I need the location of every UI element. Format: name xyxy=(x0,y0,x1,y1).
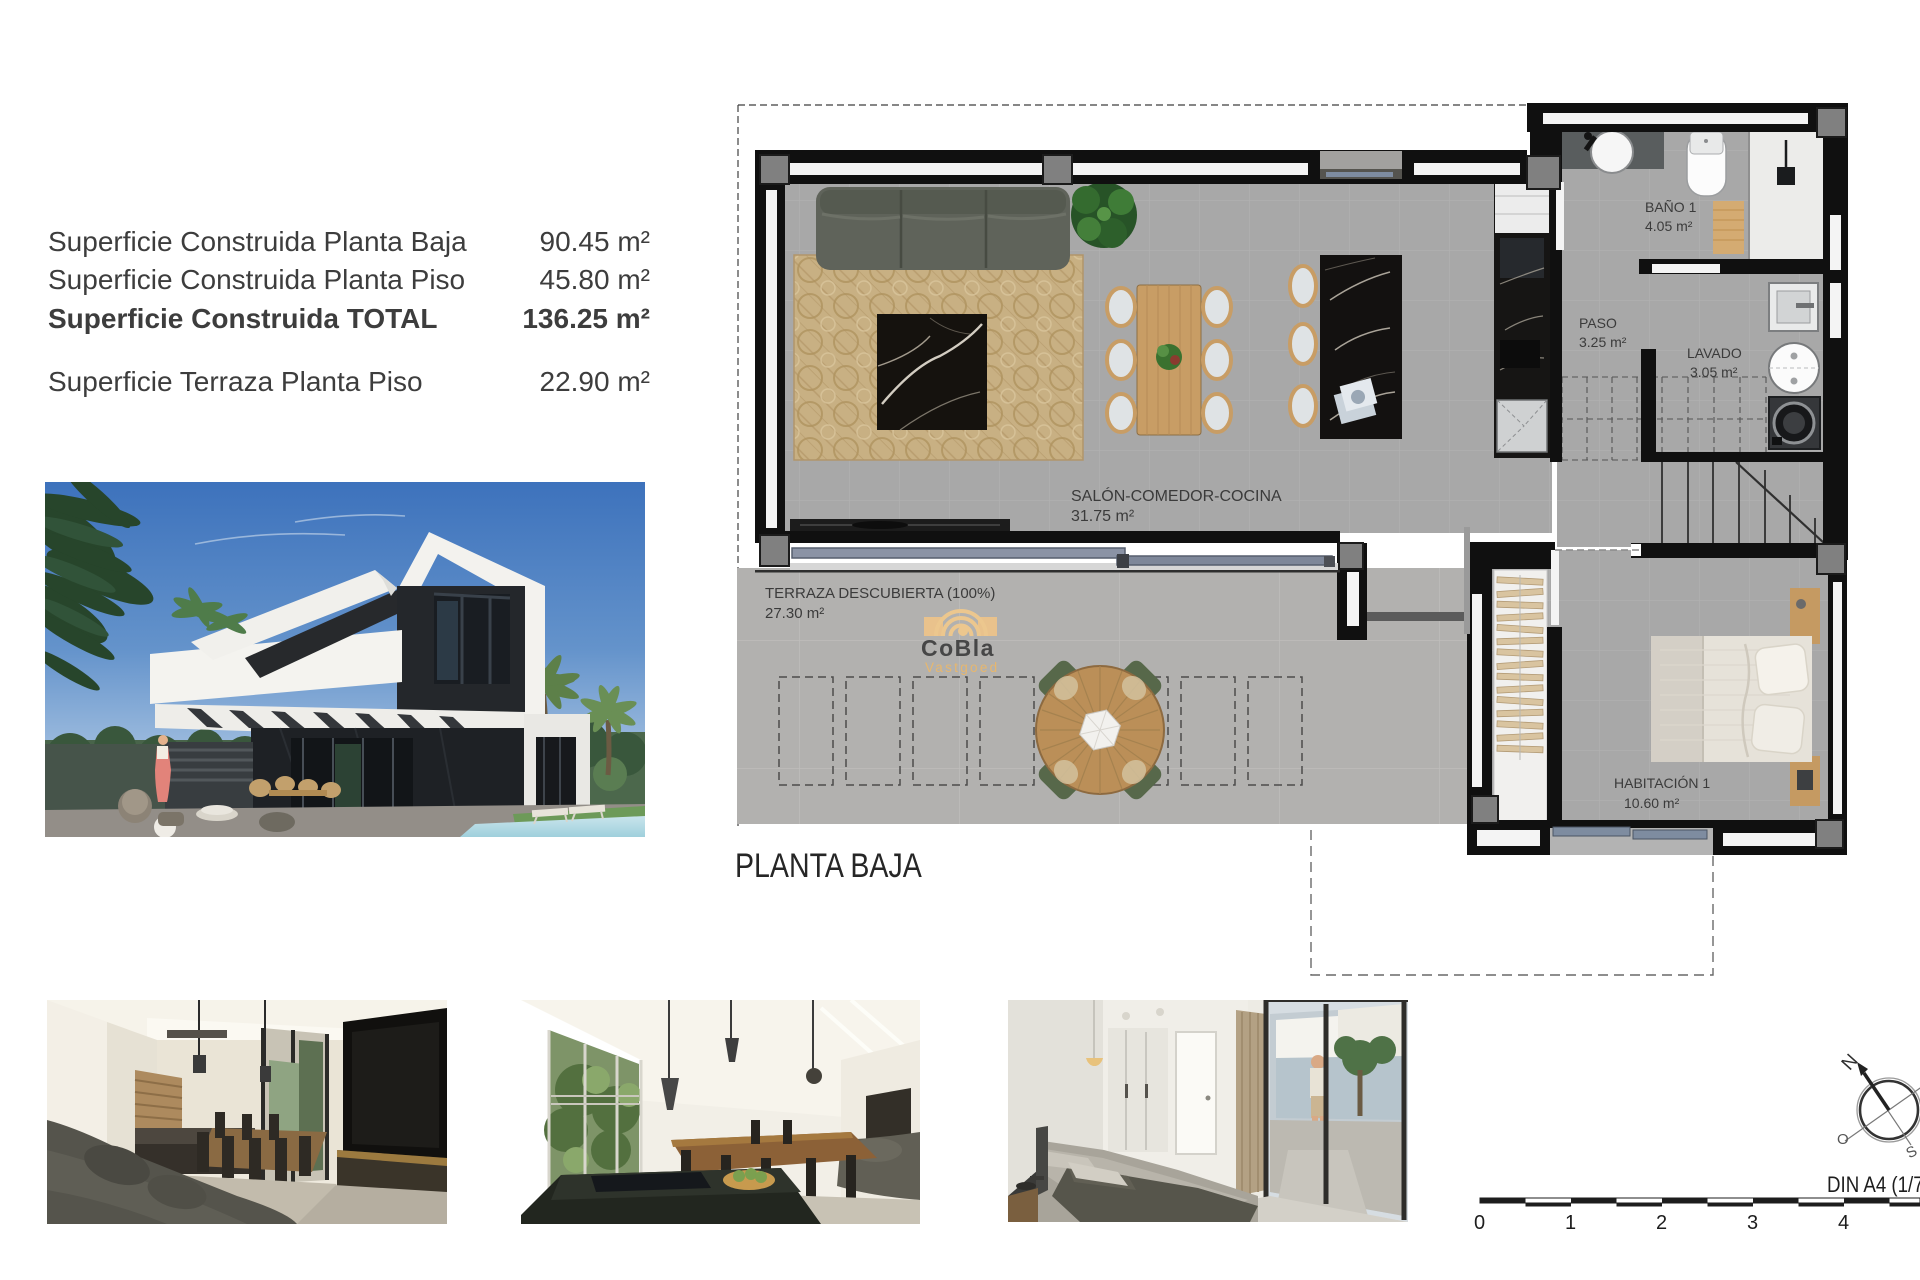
svg-text:DIN A4 (1/75): DIN A4 (1/75) xyxy=(1827,1174,1920,1198)
svg-text:3.05 m²: 3.05 m² xyxy=(1690,364,1738,380)
svg-text:SALÓN-COMEDOR-COCINA: SALÓN-COMEDOR-COCINA xyxy=(1071,486,1282,505)
svg-text:Vastgoed: Vastgoed xyxy=(925,660,999,675)
svg-text:10.60 m²: 10.60 m² xyxy=(1624,795,1680,811)
svg-text:27.30 m²: 27.30 m² xyxy=(765,605,824,622)
svg-text:3: 3 xyxy=(1747,1212,1758,1234)
svg-text:LAVADO: LAVADO xyxy=(1687,345,1742,361)
svg-text:N: N xyxy=(1838,1050,1863,1074)
svg-text:HABITACIÓN 1: HABITACIÓN 1 xyxy=(1614,775,1710,791)
svg-text:CoBla: CoBla xyxy=(921,635,995,661)
svg-text:2: 2 xyxy=(1656,1212,1667,1234)
svg-text:1: 1 xyxy=(1565,1212,1576,1234)
svg-text:BAÑO 1: BAÑO 1 xyxy=(1645,199,1697,215)
svg-text:0: 0 xyxy=(1474,1212,1485,1234)
svg-text:TERRAZA DESCUBIERTA (100%): TERRAZA DESCUBIERTA (100%) xyxy=(765,585,995,602)
svg-text:31.75 m²: 31.75 m² xyxy=(1071,508,1135,525)
svg-text:O: O xyxy=(1837,1131,1849,1148)
svg-text:PASO: PASO xyxy=(1579,315,1617,331)
svg-text:3.25 m²: 3.25 m² xyxy=(1579,334,1627,350)
svg-text:4.05 m²: 4.05 m² xyxy=(1645,218,1693,234)
svg-text:S: S xyxy=(1903,1142,1920,1162)
svg-text:4: 4 xyxy=(1838,1212,1849,1234)
